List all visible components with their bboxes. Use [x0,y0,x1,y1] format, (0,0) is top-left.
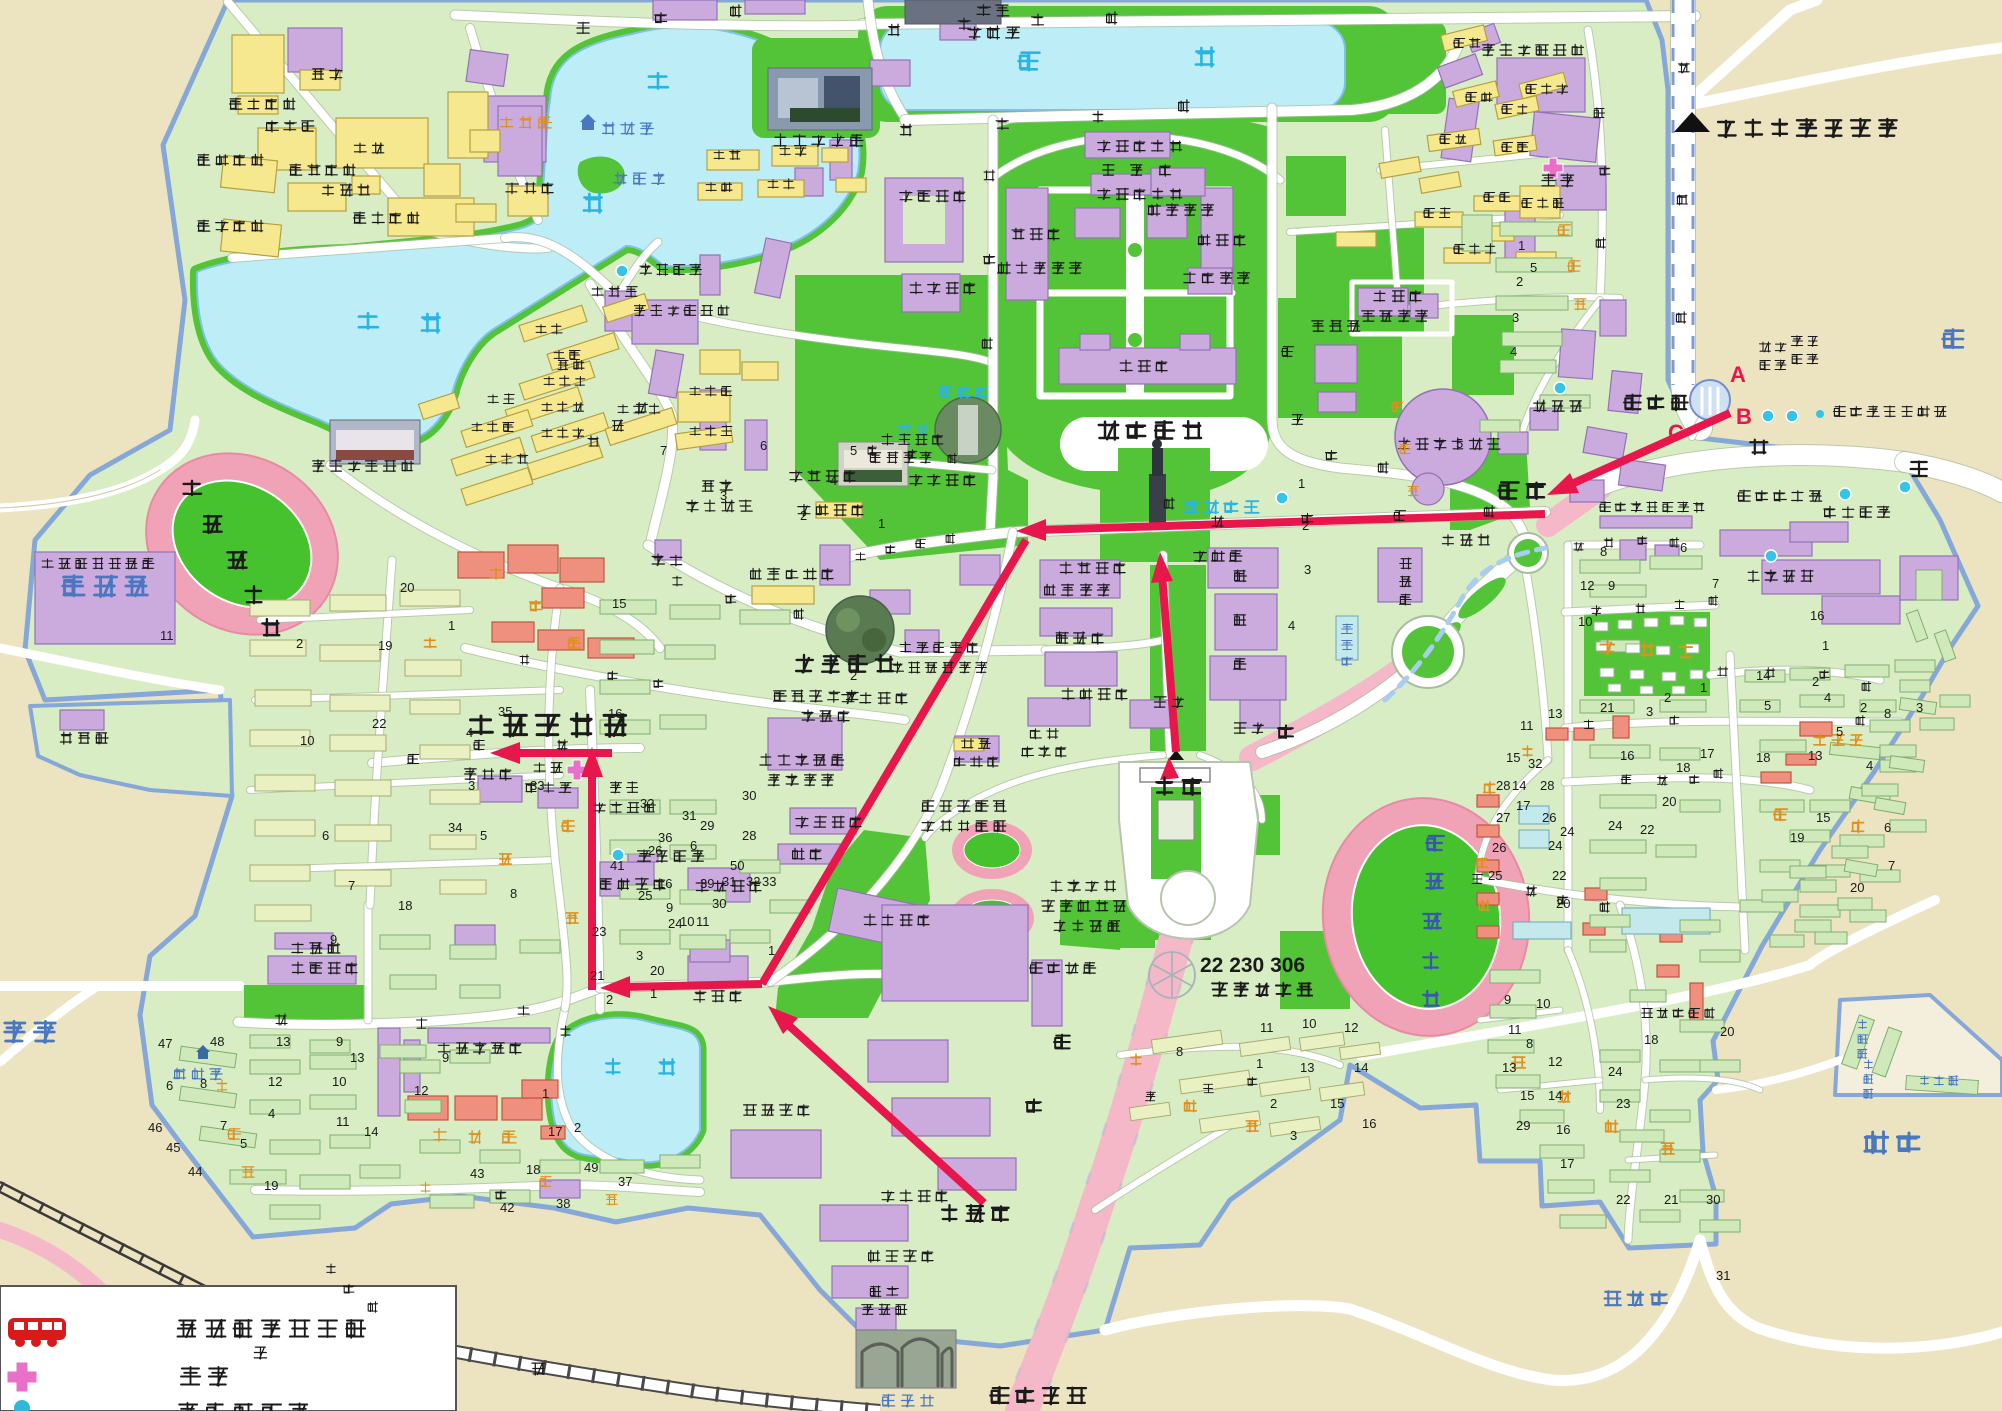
svg-text:23: 23 [1616,1096,1630,1111]
svg-text:7: 7 [1712,576,1719,591]
svg-text:15: 15 [612,596,626,611]
svg-text:46: 46 [148,1120,162,1135]
svg-text:1: 1 [650,986,657,1001]
svg-text:9: 9 [666,900,673,915]
svg-text:24: 24 [1608,818,1622,833]
svg-text:16: 16 [1810,608,1824,623]
svg-text:13: 13 [1300,1060,1314,1075]
svg-text:12: 12 [1344,1020,1358,1035]
svg-text:11: 11 [1520,718,1534,733]
svg-text:10: 10 [1302,1016,1316,1031]
svg-text:4: 4 [1824,690,1831,705]
svg-text:13: 13 [1808,748,1822,763]
svg-text:9: 9 [1608,578,1615,593]
svg-text:5: 5 [480,828,487,843]
svg-text:3: 3 [720,488,727,503]
svg-text:48: 48 [210,1034,224,1049]
svg-text:7: 7 [660,443,667,458]
svg-text:8: 8 [1600,544,1607,559]
svg-text:35: 35 [498,704,512,719]
svg-text:16: 16 [1620,748,1634,763]
svg-text:25: 25 [638,888,652,903]
svg-text:13: 13 [1548,706,1562,721]
svg-text:20: 20 [1850,880,1864,895]
svg-text:7: 7 [348,878,355,893]
svg-text:2: 2 [850,668,857,683]
svg-text:26: 26 [1542,810,1556,825]
svg-text:11: 11 [336,1114,350,1129]
svg-text:33: 33 [762,874,776,889]
svg-text:22: 22 [1640,822,1654,837]
svg-text:4: 4 [830,473,837,488]
svg-text:34: 34 [448,820,462,835]
svg-text:15: 15 [1506,750,1520,765]
svg-text:50: 50 [730,858,744,873]
svg-text:32: 32 [1528,756,1542,771]
svg-text:6: 6 [322,828,329,843]
svg-text:10: 10 [300,733,314,748]
svg-text:14: 14 [1756,668,1770,683]
svg-text:7: 7 [220,1118,227,1133]
svg-text:30: 30 [712,896,726,911]
svg-text:38: 38 [556,1196,570,1211]
svg-text:5: 5 [1836,724,1843,739]
svg-text:10: 10 [1536,996,1550,1011]
svg-text:11: 11 [1508,1022,1522,1037]
svg-text:12: 12 [1548,1054,1562,1069]
svg-text:13: 13 [350,1050,364,1065]
svg-text:12: 12 [1580,578,1594,593]
svg-text:36: 36 [658,830,672,845]
svg-text:2: 2 [606,992,613,1007]
svg-text:3: 3 [1304,562,1311,577]
svg-text:1: 1 [878,516,885,531]
svg-text:9: 9 [336,1034,343,1049]
svg-text:22: 22 [1552,868,1566,883]
svg-text:2: 2 [800,508,807,523]
svg-text:1: 1 [542,1086,549,1101]
svg-text:6: 6 [760,438,767,453]
svg-text:16: 16 [608,706,622,721]
svg-text:14: 14 [1512,778,1526,793]
svg-text:6: 6 [690,838,697,853]
svg-text:21: 21 [1600,700,1614,715]
svg-text:18: 18 [1644,1032,1658,1047]
svg-text:1: 1 [1518,238,1525,253]
svg-text:22: 22 [372,716,386,731]
svg-text:19: 19 [378,638,392,653]
svg-text:26: 26 [648,843,662,858]
svg-text:19: 19 [1790,830,1804,845]
svg-text:9: 9 [1504,992,1511,1007]
svg-text:9: 9 [330,932,337,947]
svg-text:8: 8 [1526,1036,1533,1051]
svg-text:19: 19 [264,1178,278,1193]
svg-text:3: 3 [636,948,643,963]
svg-text:24: 24 [1608,1064,1622,1079]
svg-text:5: 5 [1530,260,1537,275]
svg-text:14: 14 [364,1124,378,1139]
svg-text:44: 44 [188,1164,202,1179]
svg-text:30: 30 [1706,1192,1720,1207]
svg-text:31: 31 [1716,1268,1730,1283]
svg-text:B: B [1736,404,1752,429]
svg-text:15: 15 [1520,1088,1534,1103]
svg-text:2: 2 [1664,690,1671,705]
svg-text:11: 11 [160,628,174,643]
svg-text:28: 28 [1540,778,1554,793]
svg-text:1: 1 [448,618,455,633]
svg-text:10: 10 [1578,614,1592,629]
svg-text:13: 13 [1502,1060,1516,1075]
svg-text:2: 2 [1812,674,1819,689]
svg-text:8: 8 [1176,1044,1183,1059]
svg-text:29: 29 [1516,1118,1530,1133]
svg-text:28: 28 [1496,778,1510,793]
svg-text:3: 3 [1916,700,1923,715]
svg-text:14: 14 [1354,1060,1368,1075]
svg-text:7: 7 [1888,858,1895,873]
svg-text:16: 16 [1362,1116,1376,1131]
svg-text:3: 3 [468,778,475,793]
svg-text:5: 5 [1456,436,1463,451]
svg-text:39: 39 [700,876,714,891]
svg-text:12: 12 [414,1083,428,1098]
svg-text:17: 17 [548,1124,562,1139]
svg-text:16: 16 [658,876,672,891]
svg-text:11: 11 [1260,1020,1274,1035]
svg-text:5: 5 [240,1136,247,1151]
svg-text:17: 17 [1516,798,1530,813]
svg-text:1: 1 [1298,476,1305,491]
svg-text:17: 17 [1700,746,1714,761]
svg-text:4: 4 [1510,344,1517,359]
svg-text:2: 2 [1270,1096,1277,1111]
svg-text:15: 15 [1330,1096,1344,1111]
svg-text:20: 20 [400,580,414,595]
svg-text:2: 2 [1860,700,1867,715]
svg-text:6: 6 [1884,820,1891,835]
svg-text:2: 2 [1302,518,1309,533]
svg-text:16: 16 [1556,1122,1570,1137]
svg-text:27: 27 [1496,810,1510,825]
svg-text:C: C [1668,420,1684,445]
svg-text:2: 2 [296,636,303,651]
svg-text:8: 8 [510,886,517,901]
svg-text:3: 3 [1512,310,1519,325]
svg-text:1: 1 [1256,1056,1263,1071]
svg-text:32: 32 [746,874,760,889]
svg-text:23: 23 [592,924,606,939]
svg-text:47: 47 [158,1036,172,1051]
svg-text:20: 20 [1720,1024,1734,1039]
svg-text:24: 24 [1560,824,1574,839]
svg-text:33: 33 [530,778,544,793]
svg-text:5: 5 [1764,698,1771,713]
svg-text:14: 14 [1548,1088,1562,1103]
svg-text:2: 2 [574,1120,581,1135]
svg-text:4: 4 [1866,758,1873,773]
svg-text:12: 12 [268,1074,282,1089]
svg-text:18: 18 [398,898,412,913]
svg-text:29: 29 [700,818,714,833]
svg-text:49: 49 [584,1160,598,1175]
svg-text:6: 6 [1680,540,1687,555]
svg-text:25: 25 [1488,868,1502,883]
svg-text:4: 4 [466,725,473,740]
svg-text:22 230 306: 22 230 306 [1200,954,1305,977]
svg-text:2: 2 [1516,274,1523,289]
svg-text:24: 24 [1548,838,1562,853]
svg-text:20: 20 [650,963,664,978]
svg-text:18: 18 [1756,750,1770,765]
svg-text:10: 10 [332,1074,346,1089]
svg-text:42: 42 [500,1200,514,1215]
svg-text:18: 18 [526,1162,540,1177]
svg-text:13: 13 [276,1034,290,1049]
svg-text:3: 3 [1646,704,1653,719]
svg-text:8: 8 [1884,706,1891,721]
svg-text:21: 21 [1664,1192,1678,1207]
svg-text:30: 30 [742,788,756,803]
svg-text:20: 20 [1662,794,1676,809]
svg-text:1: 1 [1700,680,1707,695]
svg-text:4: 4 [1288,618,1295,633]
svg-text:8: 8 [200,1076,207,1091]
svg-text:3: 3 [1290,1128,1297,1143]
svg-text:21: 21 [590,968,604,983]
svg-text:A: A [1730,362,1746,387]
svg-text:41: 41 [610,858,624,873]
svg-text:32: 32 [640,796,654,811]
svg-text:37: 37 [618,1174,632,1189]
svg-text:6: 6 [166,1078,173,1093]
svg-text:43: 43 [470,1166,484,1181]
svg-text:45: 45 [166,1140,180,1155]
svg-text:17: 17 [1560,1156,1574,1171]
svg-text:1: 1 [1822,638,1829,653]
svg-text:15: 15 [1816,810,1830,825]
svg-text:9: 9 [442,1050,449,1065]
svg-text:5: 5 [850,443,857,458]
svg-text:28: 28 [742,828,756,843]
svg-text:4: 4 [268,1106,275,1121]
svg-text:20: 20 [1556,896,1570,911]
svg-text:31: 31 [682,808,696,823]
svg-text:18: 18 [1676,760,1690,775]
svg-text:22: 22 [1616,1192,1630,1207]
svg-text:31: 31 [722,874,736,889]
svg-text:10: 10 [680,914,694,929]
svg-text:1: 1 [768,943,775,958]
svg-text:26: 26 [1492,840,1506,855]
svg-text:11: 11 [696,914,710,929]
